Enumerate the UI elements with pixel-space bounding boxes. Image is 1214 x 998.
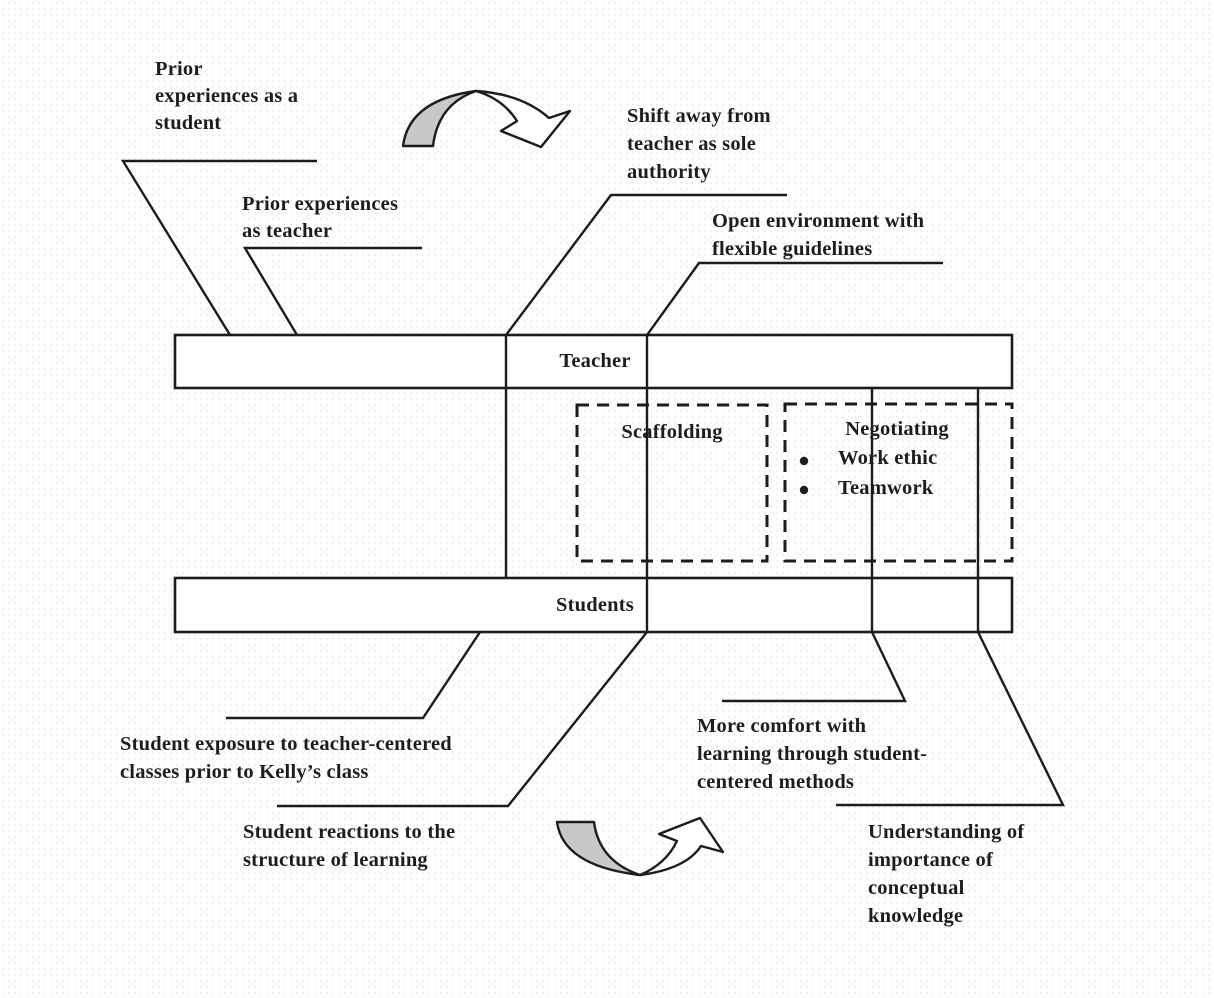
annotation-line: knowledge	[868, 905, 963, 927]
annotation-prior-teacher: Prior experiences as teacher	[242, 193, 398, 242]
annotation-line: conceptual	[868, 877, 965, 899]
annotation-line: student	[155, 112, 221, 134]
annotation-line: Understanding of	[868, 821, 1025, 843]
annotation-line: importance of	[868, 849, 994, 871]
annotation-line: learning through student-	[697, 743, 927, 765]
annotation-line: Open environment with	[712, 210, 925, 232]
figure-canvas: Teacher Students Scaffolding Negotiating…	[0, 0, 1214, 998]
annotation-line: Prior	[155, 58, 203, 80]
bullet-icon	[800, 457, 808, 465]
annotation-shift-away: Shift away from teacher as sole authorit…	[627, 105, 771, 183]
leader-prior-teacher	[245, 248, 422, 335]
annotation-line: Prior experiences	[242, 193, 398, 215]
annotation-line: centered methods	[697, 771, 854, 793]
annotation-line: structure of learning	[243, 849, 428, 871]
teacher-student-shift-diagram: Teacher Students Scaffolding Negotiating…	[0, 0, 1214, 998]
negotiating-bullet-work-ethic: Work ethic	[838, 447, 937, 469]
annotation-prior-student: Prior experiences as a student	[155, 58, 298, 134]
arrow-gray-band	[403, 91, 476, 146]
annotation-line: authority	[627, 161, 711, 183]
bullet-icon	[800, 486, 808, 494]
annotation-more-comfort: More comfort with learning through stude…	[697, 715, 927, 793]
annotation-line: More comfort with	[697, 715, 867, 737]
curved-arrow-down-right-icon	[403, 91, 570, 147]
annotation-line: Student exposure to teacher-centered	[120, 733, 452, 755]
annotation-line: as teacher	[242, 220, 332, 242]
annotation-student-reactions: Student reactions to the structure of le…	[243, 821, 455, 871]
scaffolding-label: Scaffolding	[621, 421, 723, 443]
annotation-open-environment: Open environment with flexible guideline…	[712, 210, 925, 260]
arrow-head	[476, 91, 570, 147]
annotation-line: experiences as a	[155, 85, 298, 107]
teacher-bar-label: Teacher	[559, 350, 630, 372]
negotiating-bullet-teamwork: Teamwork	[838, 477, 934, 499]
annotation-line: Shift away from	[627, 105, 771, 127]
annotation-line: Student reactions to the	[243, 821, 455, 843]
negotiating-label: Negotiating	[845, 418, 949, 440]
curved-arrow-up-right-icon	[557, 818, 723, 875]
annotation-line: teacher as sole	[627, 133, 756, 155]
annotation-understanding: Understanding of importance of conceptua…	[868, 821, 1025, 927]
arrow-gray-band	[557, 822, 640, 875]
leader-student-exposure	[226, 632, 480, 718]
students-bar-label: Students	[556, 594, 634, 616]
annotation-line: classes prior to Kelly’s class	[120, 761, 369, 783]
annotation-student-exposure: Student exposure to teacher-centered cla…	[120, 733, 452, 783]
arrow-head	[640, 818, 723, 875]
annotation-line: flexible guidelines	[712, 238, 872, 260]
